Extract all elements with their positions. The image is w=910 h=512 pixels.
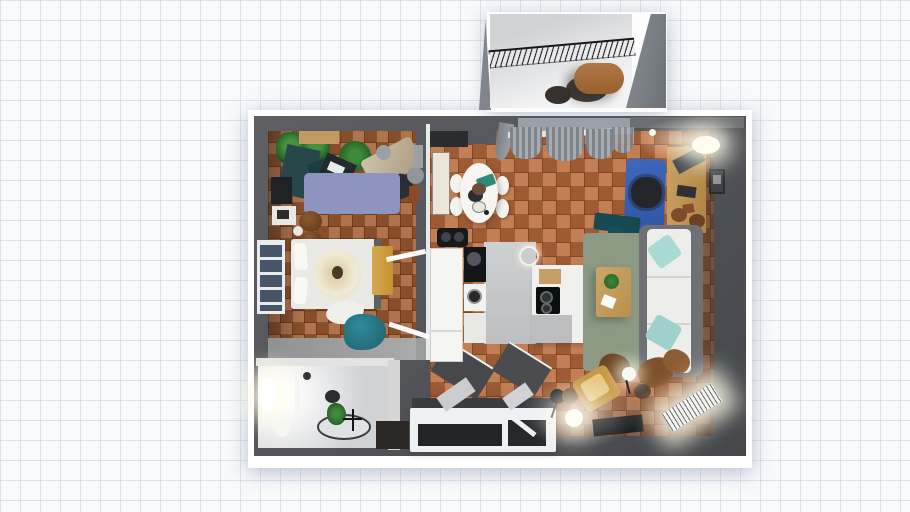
shelf-box (277, 210, 289, 219)
bath-light-glow (258, 378, 278, 412)
chair-gray[interactable] (407, 167, 424, 184)
wall-console[interactable] (271, 177, 292, 204)
drape-2[interactable] (546, 127, 584, 161)
bath-sink-dark[interactable] (325, 390, 340, 403)
counter-low[interactable] (464, 313, 486, 343)
grid-background (0, 0, 910, 512)
bath-partition (295, 366, 300, 422)
drape-3[interactable] (586, 129, 614, 159)
bed-pillow-2 (293, 276, 308, 304)
table-food-bowl (472, 183, 486, 195)
floorplan (0, 0, 910, 512)
wall-shelf-gray[interactable] (414, 145, 423, 168)
window-bedroom[interactable] (257, 240, 285, 314)
drying-rack-bar (343, 418, 362, 420)
desk-round-gray[interactable] (376, 145, 391, 160)
drape[interactable] (510, 127, 542, 159)
light-pool-entry (520, 378, 640, 448)
sofa-seam (647, 276, 691, 278)
stove-basin (467, 252, 481, 266)
pet-bowl-b (454, 232, 464, 242)
bed-pillow (293, 242, 308, 270)
chandelier[interactable] (519, 246, 539, 266)
desk-stool[interactable] (671, 208, 687, 222)
bathroom-wall-top (256, 358, 394, 366)
shelf-patterned[interactable] (432, 152, 450, 215)
dresser-wood[interactable] (299, 131, 339, 144)
light-pool-top (636, 118, 732, 162)
vestibule-opening[interactable] (418, 424, 502, 446)
drying-rack-pole[interactable] (352, 409, 354, 431)
toilet[interactable] (275, 418, 290, 437)
balcony-table[interactable] (574, 63, 624, 94)
cat-on-bed (332, 266, 343, 279)
drape-4[interactable] (612, 127, 634, 153)
washer-door (467, 289, 482, 304)
office-chair[interactable] (631, 177, 662, 208)
dining-chair-4[interactable] (496, 199, 509, 218)
upper-cabinet-dark[interactable] (430, 131, 468, 147)
ball-lamp-white[interactable] (293, 226, 303, 236)
bath-ceiling-dot (303, 372, 311, 380)
fridge[interactable] (430, 248, 463, 362)
cutting-board[interactable] (539, 269, 561, 284)
bench-yellow[interactable] (372, 246, 393, 295)
rug-shag-violet[interactable] (304, 173, 400, 214)
coffee-table-plant[interactable] (604, 274, 619, 289)
fridge-seam (430, 330, 463, 332)
frame-art (713, 175, 721, 184)
dark-mat[interactable] (376, 421, 409, 449)
bath-plant[interactable] (327, 403, 346, 425)
island-counter-gray[interactable] (532, 315, 572, 343)
hallway-floor (268, 338, 416, 360)
balcony-chair-2[interactable] (545, 86, 571, 104)
upper-cabinet-gray[interactable] (468, 131, 496, 144)
table-dot (484, 210, 489, 215)
pet-bowl-a (441, 232, 451, 242)
wall-decor-brown[interactable] (409, 186, 419, 202)
burner-2 (541, 303, 552, 314)
